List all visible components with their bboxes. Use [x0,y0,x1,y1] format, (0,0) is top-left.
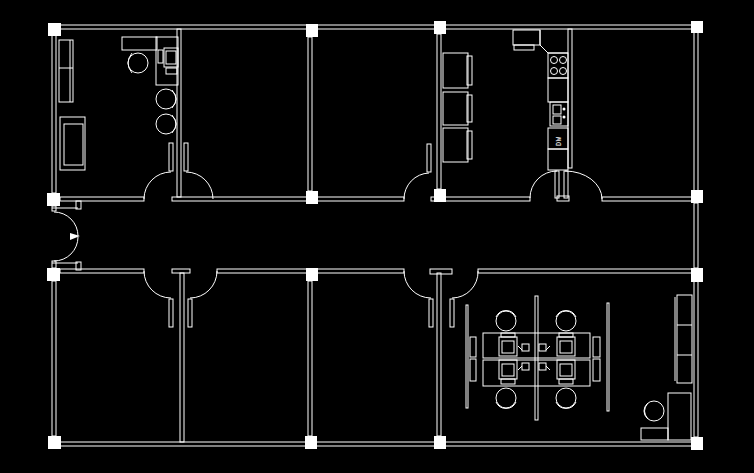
office1-keyboard [166,68,177,74]
wall-corridor-top-1 [60,197,144,201]
kitchen-burner-4 [560,68,567,75]
wall-div-lower-1 [180,273,184,442]
column-b2 [306,191,318,204]
wall-top [53,25,697,29]
kitchen-counter-mid [548,78,568,102]
workstation-panel-left [466,305,468,408]
column-c4 [691,268,703,282]
office1-desk-top [122,37,157,50]
wall-corridor-bottom-1 [60,269,144,273]
office1-guest-chair-1-back [172,90,176,108]
column-d3 [434,436,446,449]
wall-div-lower-2 [308,281,312,436]
column-b1 [47,193,60,206]
ws-mouse-1-cable [518,346,522,350]
ws-keyboard-2 [559,333,573,337]
wall-right-lower [694,281,698,437]
kitchen-burner-3 [551,68,558,75]
wall-kitchen [568,29,572,168]
corner-desk-return [641,428,668,440]
kitchen-faucet-2 [563,116,566,119]
door-arc-room7 [190,271,217,298]
ws-mouse-4 [539,363,546,370]
wall-div-upper-2 [308,37,312,191]
corner-desk [668,393,691,440]
column-b4 [691,190,703,203]
office1-chair-desk [128,53,148,73]
door-arc-kitchen [530,171,557,198]
door-arc-room3 [404,173,429,199]
entrance-door-meeting-arrow [70,233,80,240]
entrance-door-arc-bottom [54,237,78,261]
door-leaf-room6 [169,299,173,327]
wall-right-mid [694,203,698,268]
door-arc-room2 [186,172,213,199]
column-d4 [691,437,703,450]
ws-mouse-2-cable [546,346,550,350]
office1-cpu-tower [158,50,163,63]
kitchen-faucet-1 [563,108,566,111]
door-leaf-office1 [169,143,173,171]
entrance-door-arc-top [54,212,78,236]
door-leaf-room5 [564,171,568,198]
office1-sofa-inner [64,124,83,165]
kitchen-counter-top [513,30,540,45]
ws-monitor-3-inner [502,364,514,376]
column-b3 [434,189,446,202]
wall-div-lower-3 [437,273,441,436]
kitchen-counter-low [548,149,568,170]
kitchen-cabinet-1 [443,53,468,88]
door-arc-workroom [452,271,478,298]
workstation-panel-right [607,303,609,411]
ws-chair-1 [496,311,516,331]
wall-left-stub-b [52,261,56,268]
office1-monitor-inner [166,51,176,64]
wall-corridor-bottom-5 [478,269,694,273]
door-leaf-room2 [184,143,188,171]
kitchen-counter-drawer [514,45,534,50]
ws-mouse-3 [522,363,529,370]
ws-side-table-3 [593,337,600,357]
ws-keyboard-3 [501,379,515,384]
ws-mouse-3-cable [518,366,522,370]
door-arc-room6 [144,271,171,298]
office1-desk-side [156,37,178,85]
ws-monitor-4-inner [560,364,572,376]
wall-corridor-top-5 [602,197,694,201]
kitchen-dishwasher-label: DW [555,136,563,146]
kitchen-burner-2 [560,57,567,64]
door-arc-room5 [565,171,602,199]
wall-left-upper [52,29,56,193]
column-a3 [434,21,446,34]
door-leaf-workroom [450,299,454,327]
wall-corridor-bottom-2 [172,269,190,273]
ws-monitor-1-inner [502,341,514,353]
kitchen-counter-corner [540,30,568,53]
kitchen-cabinet-2 [443,92,468,125]
door-leaf-room3 [427,144,431,172]
ws-mouse-2 [539,344,546,351]
wall-corridor-top-2 [172,197,404,201]
door-leaf-room7 [188,299,192,327]
column-c1 [47,268,60,281]
wall-right-upper [694,29,698,191]
corner-desk-chair-back [645,403,649,419]
door-leaf-kitchen [555,171,559,198]
column-d1 [48,436,61,449]
cad-viewport: DW [0,0,754,473]
column-a1 [48,23,61,36]
ws-side-table-4 [593,359,600,381]
ws-side-table-1 [470,337,476,357]
wall-div-upper-3 [437,34,441,189]
kitchen-burner-1 [551,57,558,64]
door-arc-room8 [404,271,431,298]
office1-guest-chair-2-back [172,115,176,133]
wall-left-lower [52,281,56,436]
ws-monitor-2-inner [560,341,572,353]
ws-keyboard-4 [559,379,573,384]
wall-bottom [53,442,697,446]
column-c2 [306,268,318,281]
column-a4 [691,21,703,33]
ws-chair-3 [496,388,516,408]
ws-mouse-1 [522,344,529,351]
ws-chair-2 [556,311,576,331]
floor-plan-canvas[interactable]: DW [0,0,754,473]
kitchen-sink-basin-2 [553,116,561,124]
kitchen-cabinet-3 [443,128,468,162]
ws-mouse-4-cable [546,366,550,370]
ws-side-table-2 [470,359,476,381]
door-arc-office1 [144,172,171,199]
column-a2 [306,24,318,37]
ws-keyboard-1 [501,333,515,337]
door-leaf-room8 [429,299,433,327]
office1-wardrobe [59,40,73,102]
ws-chair-4 [556,388,576,408]
bookshelf [677,295,692,383]
column-d2 [305,436,317,449]
kitchen-sink-basin-1 [553,105,561,114]
